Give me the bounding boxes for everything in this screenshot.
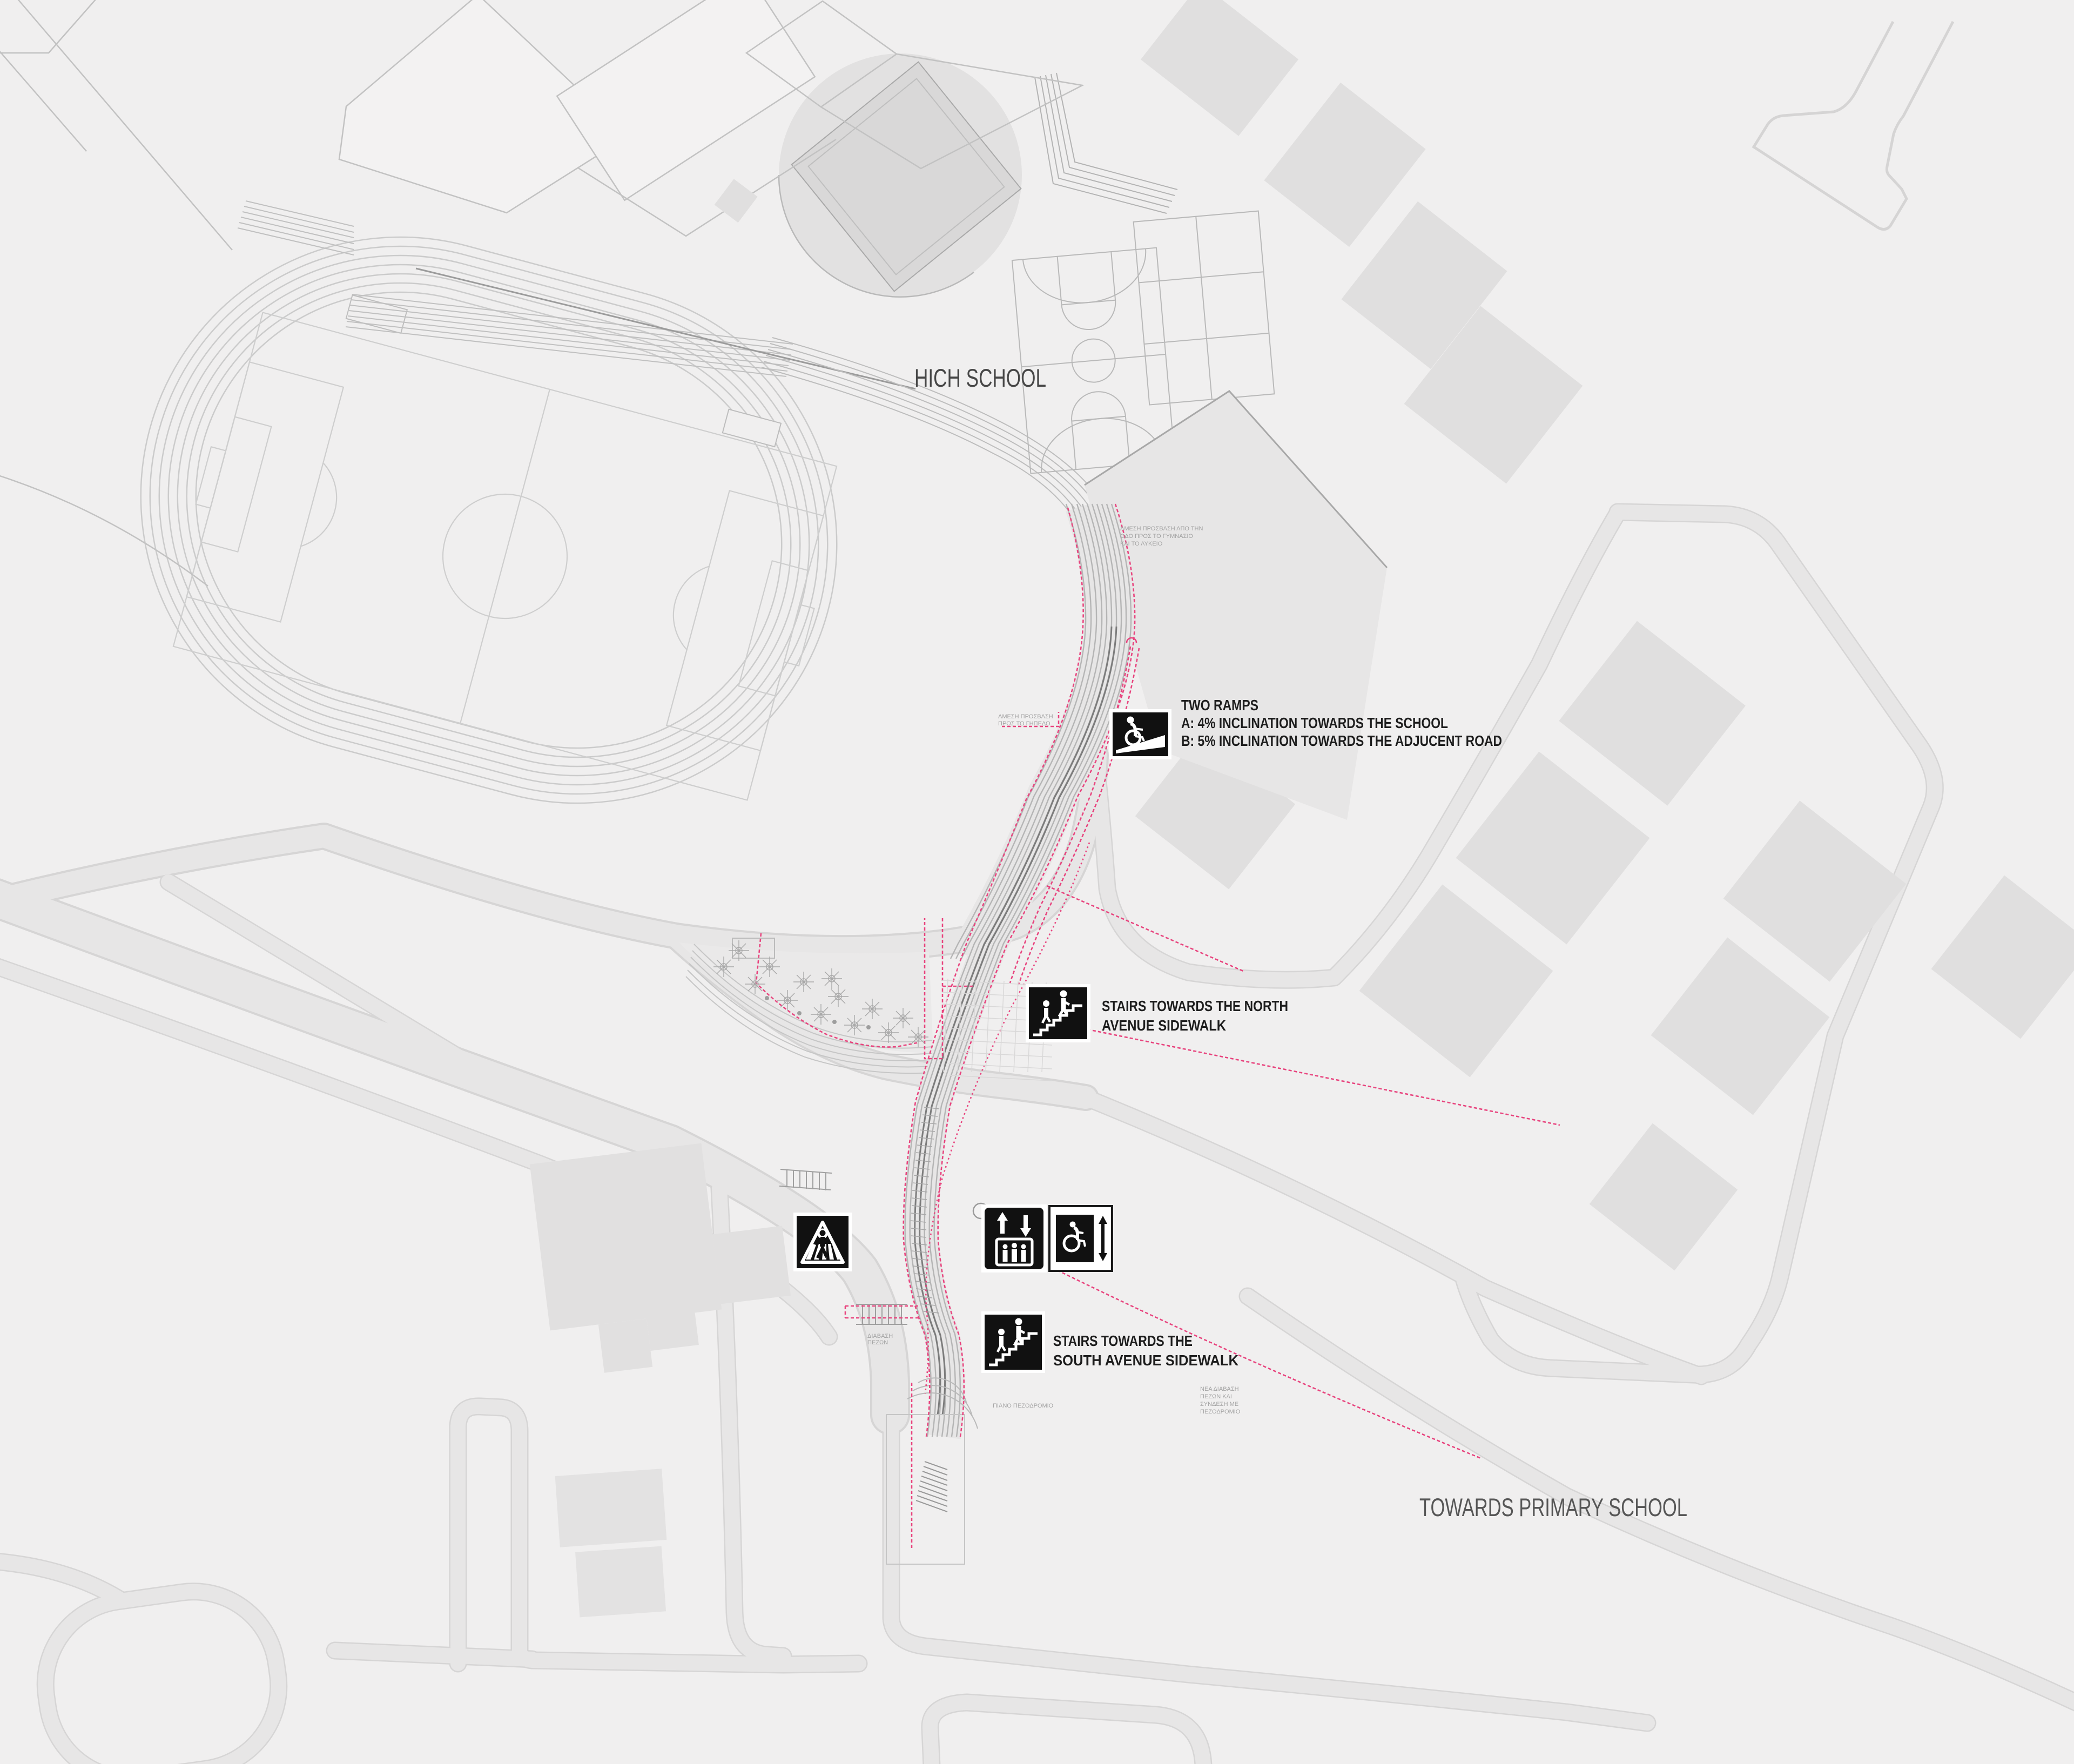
svg-text:ΣΥΝΔΕΣΗ ΜΕ: ΣΥΝΔΕΣΗ ΜΕ [1200,1401,1238,1408]
svg-text:ΠΕΖΩΝ ΚΑΙ: ΠΕΖΩΝ ΚΑΙ [1200,1393,1232,1400]
svg-text:ΑΜΕΣΗ ΠΡΟΣΒΑΣΗ ΑΠΟ ΤΗΝ: ΑΜΕΣΗ ΠΡΟΣΒΑΣΗ ΑΠΟ ΤΗΝ [1120,526,1203,532]
svg-text:ΠΙΑΝΟ ΠΕΖΟΔΡΟΜΙΟ: ΠΙΑΝΟ ΠΕΖΟΔΡΟΜΙΟ [993,1403,1054,1409]
svg-text:AVENUE SIDEWALK: AVENUE SIDEWALK [1102,1017,1226,1034]
svg-text:HICH SCHOOL: HICH SCHOOL [914,363,1046,392]
svg-text:SOUTH AVENUE SIDEWALK: SOUTH AVENUE SIDEWALK [1053,1352,1238,1369]
svg-text:ΑΜΕΣΗ ΠΡΟΣΒΑΣΗ: ΑΜΕΣΗ ΠΡΟΣΒΑΣΗ [998,713,1053,720]
svg-text:B: 5% INCLINATION TOWARDS THE: B: 5% INCLINATION TOWARDS THE ADJUCENT R… [1181,732,1502,749]
svg-text:ΠΡΟΣ ΤΟ ΓΗΠΕΔΟ: ΠΡΟΣ ΤΟ ΓΗΠΕΔΟ [998,721,1051,727]
svg-text:ΠΕΖΩΝ: ΠΕΖΩΝ [867,1339,888,1346]
svg-text:TOWARDS PRIMARY SCHOOL: TOWARDS PRIMARY SCHOOL [1419,1493,1687,1521]
svg-text:ΔΙΑΒΑΣΗ: ΔΙΑΒΑΣΗ [867,1333,893,1339]
svg-text:STAIRS TOWARDS THE: STAIRS TOWARDS THE [1053,1332,1193,1349]
svg-text:ΟΔΟ ΠΡΟΣ ΤΟ ΓΥΜΝΑΣΙΟ: ΟΔΟ ΠΡΟΣ ΤΟ ΓΥΜΝΑΣΙΟ [1120,533,1193,540]
svg-text:ΠΕΖΟΔΡΟΜΙΟ: ΠΕΖΟΔΡΟΜΙΟ [1200,1409,1241,1415]
svg-text:A: 4% INCLINATION TOWARDS THE: A: 4% INCLINATION TOWARDS THE SCHOOL [1181,715,1448,731]
svg-text:STAIRS TOWARDS THE NORTH: STAIRS TOWARDS THE NORTH [1102,998,1288,1014]
svg-text:ΚΑΙ ΤΟ ΛΥΚΕΙΟ: ΚΑΙ ΤΟ ΛΥΚΕΙΟ [1120,541,1163,547]
svg-text:ΝΕΑ ΔΙΑΒΑΣΗ: ΝΕΑ ΔΙΑΒΑΣΗ [1200,1386,1239,1392]
svg-text:TWO RAMPS: TWO RAMPS [1181,697,1258,713]
